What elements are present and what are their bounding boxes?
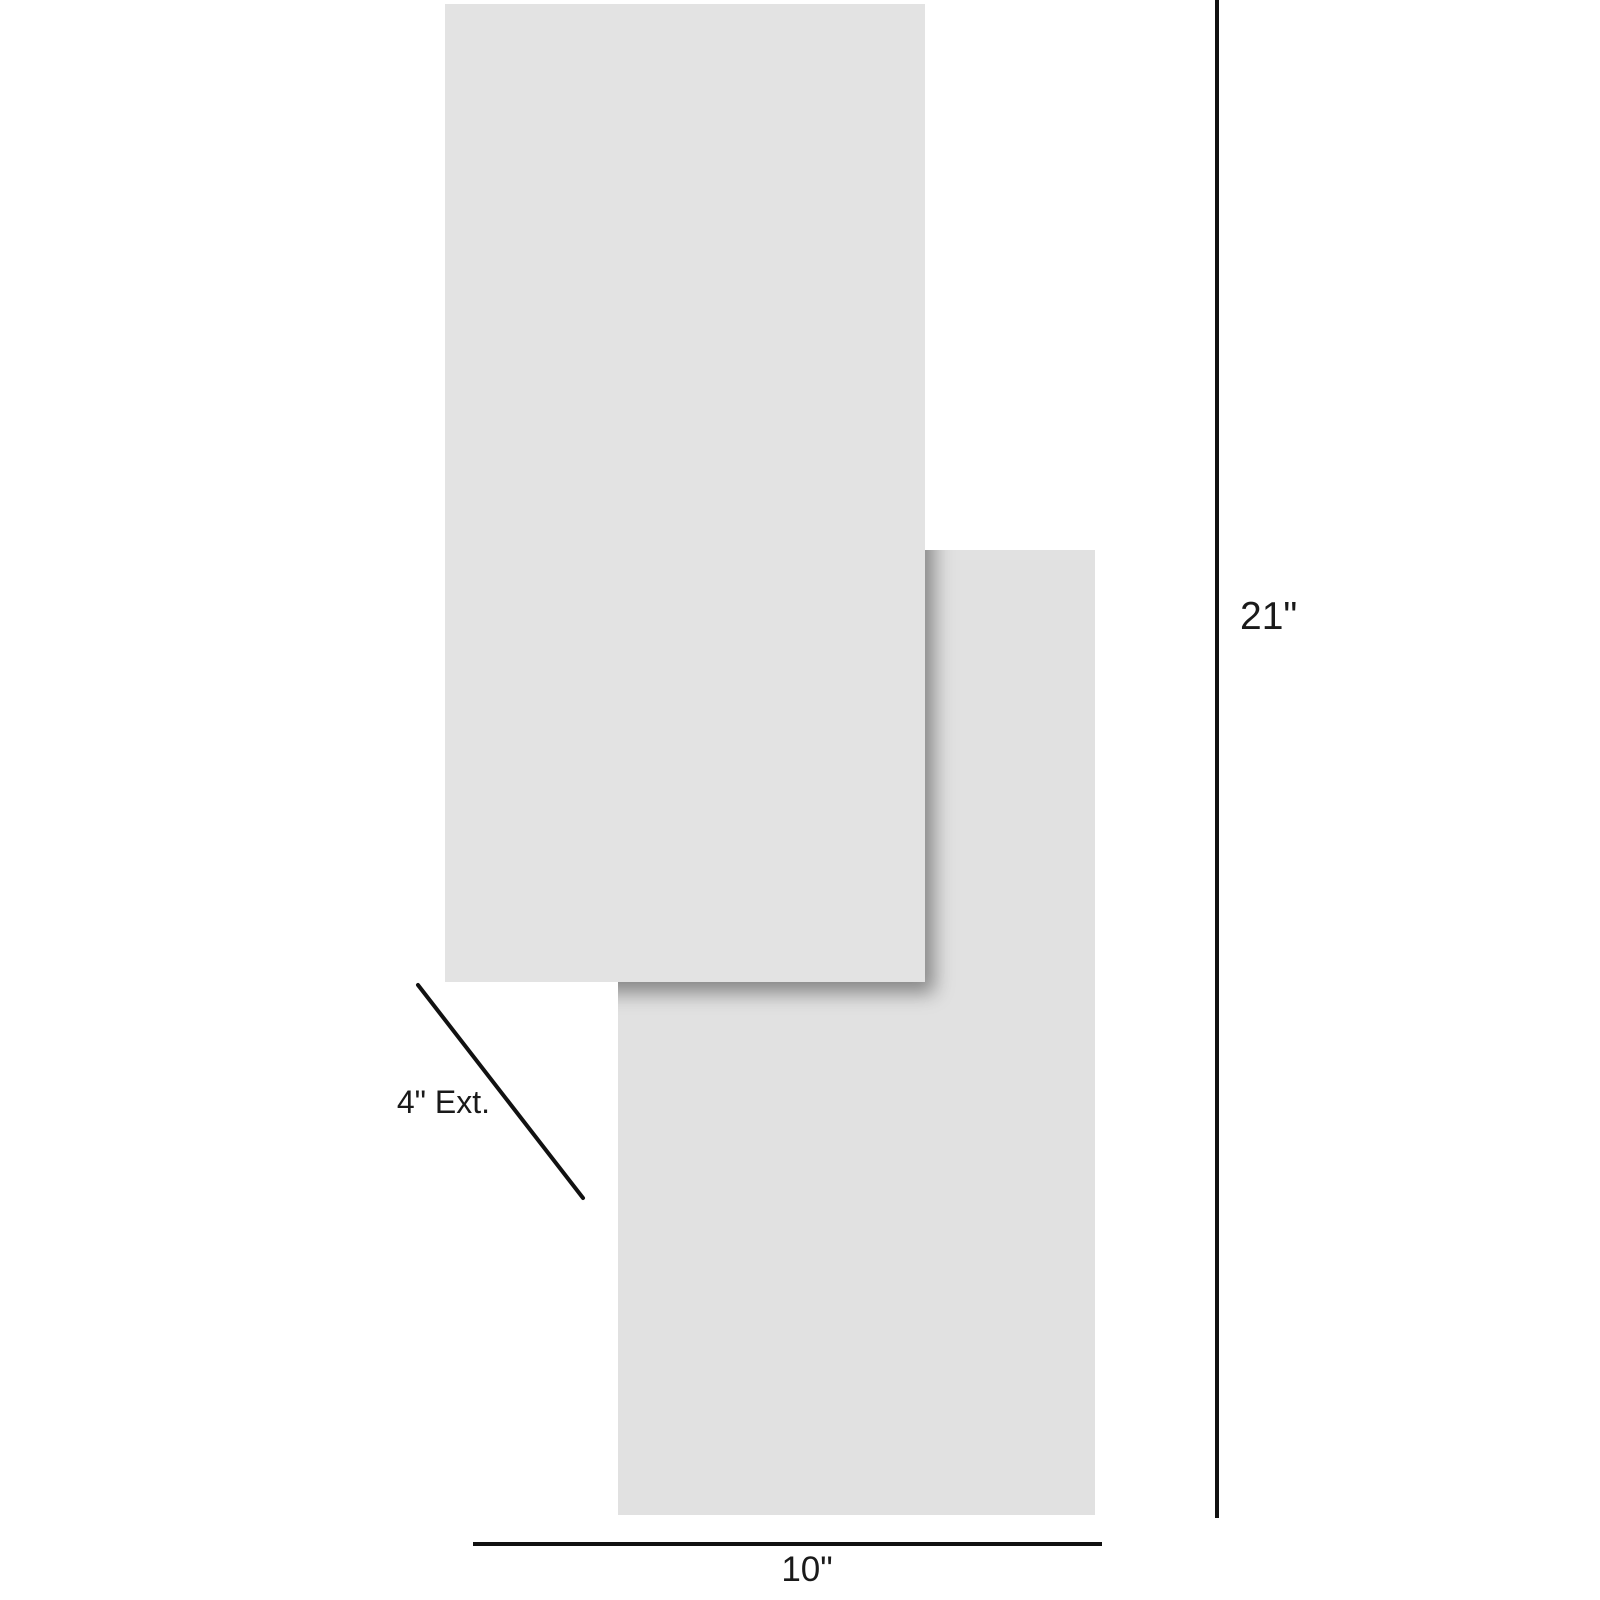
height-dimension-label: 21": [1240, 596, 1297, 639]
width-dimension-line: [473, 1542, 1102, 1546]
height-dimension-line: [1215, 0, 1219, 1518]
width-dimension-label: 10": [757, 1551, 857, 1590]
front-panel: [445, 4, 925, 982]
extension-dimension-label: 4" Ext.: [340, 1085, 490, 1120]
diagram-canvas: 21" 10" 4" Ext.: [0, 0, 1600, 1600]
